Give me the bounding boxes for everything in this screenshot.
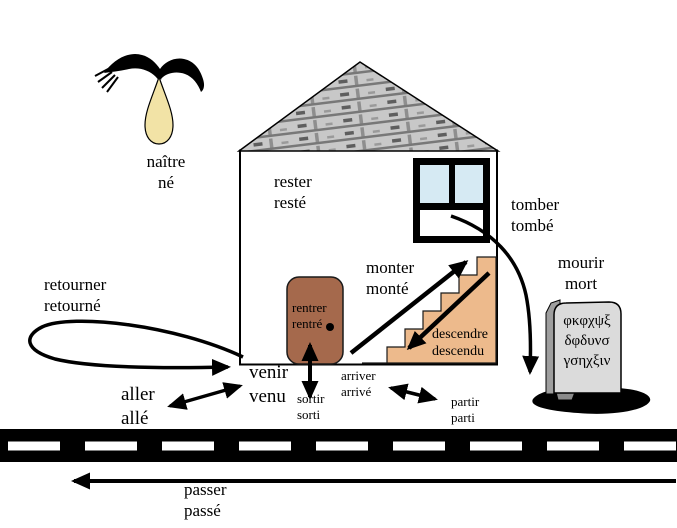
roof-icon [239,62,498,151]
verb-infinitive: venir [249,362,288,383]
verb-past-participle: mort [565,274,597,293]
verb-infinitive: sortir [297,391,324,406]
verb-past-participle: tombé [511,216,554,235]
label-rentrer: rentrer rentré [292,300,327,332]
bird-body [104,54,204,92]
verb-past-participle: arrivé [341,384,371,399]
label-arriver: arriver arrivé [341,368,376,400]
window-pane-open [420,210,483,236]
window-pane-left [420,165,449,203]
verb-past-participle: allé [121,408,148,429]
verb-infinitive: aller [121,384,155,405]
label-partir: partir parti [451,394,479,426]
inscription-line: γσηχξιν [564,353,611,369]
verb-infinitive: mourir [558,253,604,272]
verb-past-participle: descendu [432,344,484,359]
verb-past-participle: né [158,173,174,192]
tombstone-inscription: φκφχψξ δφδυνσ γσηχξιν [551,311,623,371]
verb-infinitive: descendre [432,327,488,342]
baby-bundle-icon [145,77,173,144]
label-passer: passer passé [184,479,226,521]
label-rester: rester resté [274,171,312,213]
retourner-loop-arrow [30,321,243,367]
maison-etre-diagram: naître né rester resté tomber tombé mont… [0,0,677,528]
label-venir: venir venu [249,361,288,409]
verb-infinitive: passer [184,480,226,499]
verb-infinitive: monter [366,258,414,277]
verb-infinitive: retourner [44,275,106,294]
verb-infinitive: tomber [511,195,559,214]
aller-venir-arrow [170,386,240,406]
verb-infinitive: rester [274,172,312,191]
verb-infinitive: rentrer [292,300,327,315]
inscription-line: δφδυνσ [564,333,609,349]
stork-carrying-baby-icon [95,54,204,144]
label-mourir: mourir mort [544,252,618,294]
arriver-partir-arrow [391,388,435,399]
verb-past-participle: venu [249,386,286,407]
label-naitre: naître né [128,151,204,193]
label-sortir: sortir sorti [297,391,324,423]
label-monter: monter monté [366,257,414,299]
verb-past-participle: monté [366,279,409,298]
verb-past-participle: rentré [292,316,322,331]
verb-infinitive: naître [147,152,186,171]
window-pane-right [455,165,483,203]
verb-infinitive: arriver [341,368,376,383]
inscription-line: φκφχψξ [563,313,610,329]
verb-infinitive: partir [451,394,479,409]
verb-past-participle: parti [451,410,475,425]
verb-past-participle: resté [274,193,306,212]
label-descendre: descendre descendu [432,326,488,360]
label-retourner: retourner retourné [44,274,106,316]
doorknob-icon [326,323,334,331]
label-aller: aller allé [121,383,155,431]
verb-past-participle: passé [184,501,221,520]
verb-past-participle: sorti [297,407,320,422]
label-tomber: tomber tombé [511,194,559,236]
verb-past-participle: retourné [44,296,101,315]
